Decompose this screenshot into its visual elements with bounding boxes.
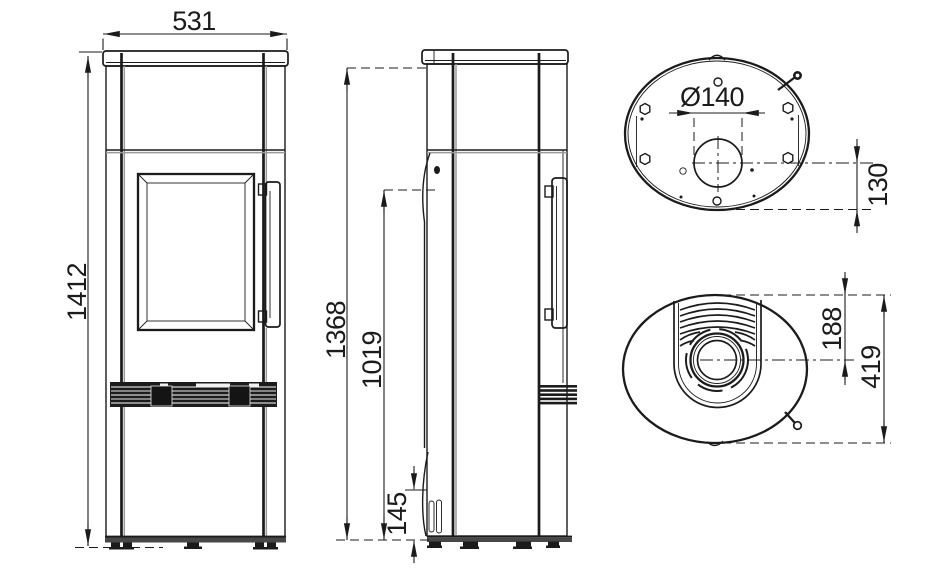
dim-flue-diameter: Ø140 (669, 82, 765, 160)
air-vent-grille-side (540, 385, 577, 404)
door-window (138, 174, 254, 330)
dim-depth-label: 419 (856, 345, 886, 389)
flue-opening (692, 136, 874, 192)
door-handle-side (545, 178, 567, 328)
lid-knob-2 (785, 412, 801, 429)
dim-rear-outlet-height: 1019 (357, 190, 438, 540)
front-view: 531 1412 (62, 6, 288, 550)
dim-rear-outlet-height-label: 1019 (357, 331, 387, 389)
dim-bottom-detail-label: 145 (382, 492, 412, 536)
top-plate-front (103, 51, 288, 66)
dim-front-to-flue-label: 188 (817, 307, 847, 351)
dim-flue-diameter-label: Ø140 (680, 82, 744, 112)
side-view: 1368 1019 145 (321, 50, 577, 563)
dim-front-height: 1412 (62, 52, 163, 548)
stove-body-side (423, 53, 567, 537)
air-vent-grille (110, 382, 277, 407)
dim-flue-to-rear-label: 130 (863, 163, 893, 207)
top-view-top-plate: 188 419 (623, 272, 891, 446)
door-handle (259, 182, 281, 327)
top-view-flue-outlet: Ø140 130 (625, 55, 893, 233)
dim-flue-to-rear: 130 (722, 139, 893, 233)
technical-drawing-page: 531 1412 (0, 0, 950, 578)
dim-front-width: 531 (103, 6, 287, 50)
stove-body-front (106, 53, 285, 537)
dim-side-body-height-label: 1368 (321, 301, 351, 359)
stove-dimension-drawing: 531 1412 (0, 0, 950, 578)
base-feet-front (105, 537, 286, 550)
dim-bottom-detail: 145 (382, 466, 427, 563)
dim-side-body-height: 1368 (321, 68, 426, 540)
dim-front-height-label: 1412 (62, 263, 92, 321)
top-plate-side (422, 50, 568, 64)
dim-front-width-label: 531 (172, 6, 216, 36)
base-feet-side (427, 537, 572, 550)
